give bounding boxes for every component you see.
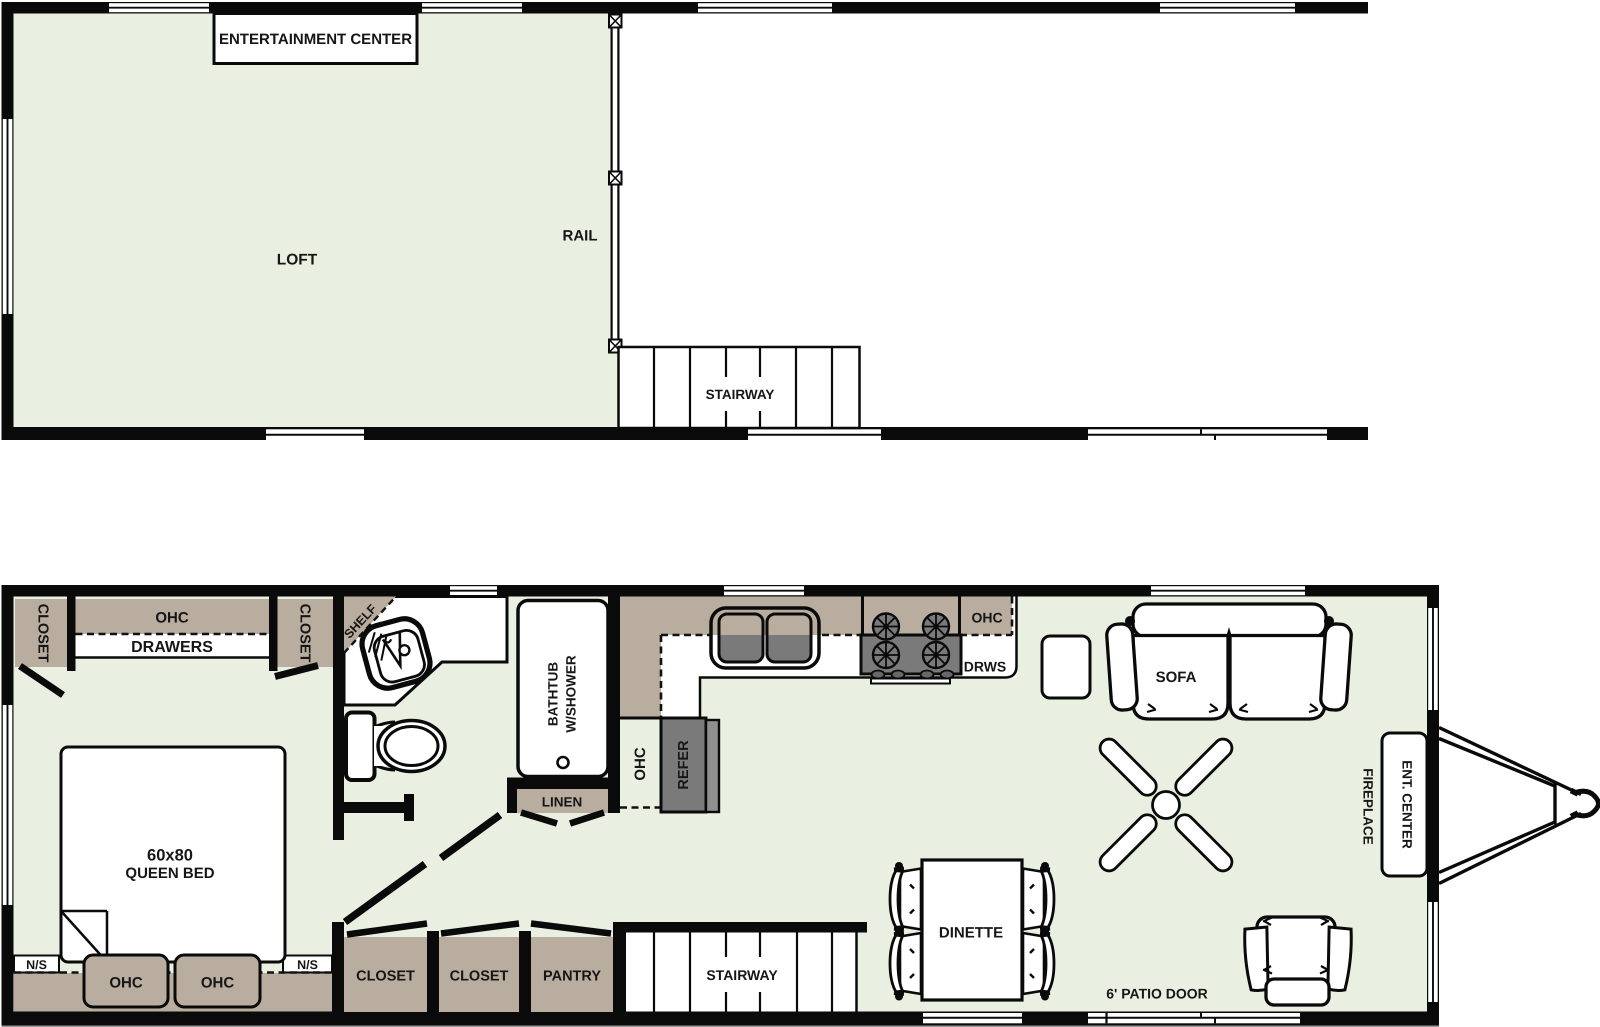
svg-text:CLOSET: CLOSET — [450, 969, 509, 985]
svg-text:STAIRWAY: STAIRWAY — [706, 967, 778, 983]
svg-text:60x80: 60x80 — [147, 847, 193, 865]
svg-text:ENT. CENTER: ENT. CENTER — [1399, 760, 1414, 849]
svg-text:STAIRWAY: STAIRWAY — [706, 387, 775, 402]
svg-text:DRWS: DRWS — [964, 659, 1007, 675]
svg-text:OHC: OHC — [201, 975, 235, 992]
svg-text:OHC: OHC — [632, 747, 649, 781]
svg-text:CLOSET: CLOSET — [297, 604, 313, 663]
svg-text:CLOSET: CLOSET — [356, 969, 415, 985]
svg-text:6' PATIO DOOR: 6' PATIO DOOR — [1106, 986, 1208, 1002]
svg-text:OHC: OHC — [109, 975, 143, 992]
svg-text:DRAWERS: DRAWERS — [131, 639, 213, 656]
svg-text:SOFA: SOFA — [1156, 669, 1197, 686]
svg-text:LOFT: LOFT — [277, 252, 318, 269]
svg-text:REFER: REFER — [676, 740, 692, 790]
svg-text:BATHTUB: BATHTUB — [546, 662, 561, 726]
svg-text:QUEEN BED: QUEEN BED — [125, 865, 214, 882]
svg-text:N/S: N/S — [297, 958, 318, 972]
svg-text:DINETTE: DINETTE — [939, 925, 1003, 942]
svg-text:OHC: OHC — [155, 610, 189, 627]
svg-text:OHC: OHC — [971, 610, 1002, 626]
svg-text:CLOSET: CLOSET — [35, 604, 51, 663]
svg-text:PANTRY: PANTRY — [543, 969, 601, 985]
svg-text:LINEN: LINEN — [542, 795, 583, 810]
svg-text:ENTERTAINMENT CENTER: ENTERTAINMENT CENTER — [219, 31, 412, 48]
svg-text:FIREPLACE: FIREPLACE — [1360, 768, 1375, 845]
svg-text:W/SHOWER: W/SHOWER — [564, 655, 579, 732]
svg-text:RAIL: RAIL — [563, 228, 598, 245]
svg-text:N/S: N/S — [26, 958, 47, 972]
